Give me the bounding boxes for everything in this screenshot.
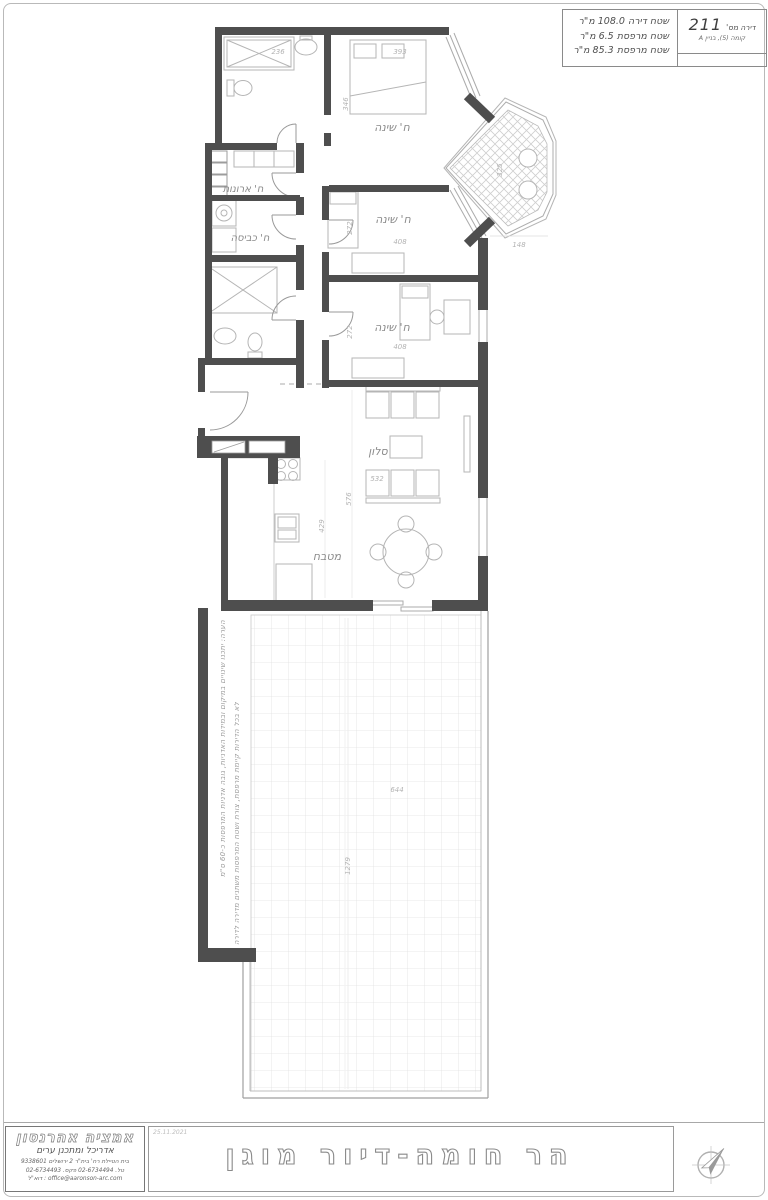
dim-terrace-h: 1279 [344, 857, 352, 875]
project-title: הר חומה-דיור מוגן [160, 1140, 640, 1171]
apartment-cell: דירה מס' 211 קומה (5), בניין A [677, 10, 766, 66]
label-bedroom-1: ח' שינה [374, 121, 410, 134]
dim-bed3-h: 272 [346, 325, 354, 339]
label-laundry-room: ח' כביסה [231, 233, 270, 244]
architect-profession: אדריכל ומתכנן ערים [6, 1146, 144, 1156]
floor-plan-drawing: ח' שינה ח' שינה ח' שינה ח' ארונות ח' כבי… [0, 0, 768, 1200]
label-closet-room: ח' ארונות [223, 184, 264, 195]
north-arrow-icon [686, 1136, 736, 1192]
dim-bay-w: 148 [512, 241, 526, 249]
apartment-number: 211 [689, 15, 723, 34]
dim-bed1-h: 346 [342, 97, 350, 111]
area-line-1: שטח דירה 108.0 מ"ר [567, 15, 669, 30]
architect-email: office@aaronson-arc.com : דוא"ל [6, 1175, 144, 1184]
dim-kitchen-h: 429 [318, 519, 326, 533]
floor-building-line: קומה (5), בניין A [678, 35, 766, 42]
terrace-note-line-2: לא בכל הדירות קיימת מרפסת, צורת ושטח המר… [233, 702, 241, 1002]
dim-living-w: 532 [370, 475, 384, 483]
architect-name: אמציה אהרנסון [6, 1130, 144, 1146]
label-bedroom-2: ח' שינה [375, 213, 411, 226]
terrace-note-line-1: הערה: יתכנו שינויים במיקום ובמידות האדני… [219, 620, 227, 980]
dim-bed1-w: 393 [393, 48, 406, 56]
furniture [207, 36, 470, 608]
floor-plan-sheet: { "sheet": { "title_block": { "apartment… [0, 0, 768, 1200]
area-line-2: שטח מרפסת 6.5 מ"ר [567, 30, 669, 45]
footer-separator [4, 1122, 764, 1123]
label-living-room: סלון [368, 445, 388, 458]
apartment-label: דירה מס' [726, 23, 755, 32]
title-block: שטח דירה 108.0 מ"ר שטח מרפסת 6.5 מ"ר שטח… [562, 9, 767, 67]
architect-address: בית הטיילת רח' בית"ר 2 ירושלים 9338601 [6, 1158, 144, 1167]
area-line-3: שטח מרפסת 85.3 מ"ר [567, 44, 669, 59]
label-kitchen: מטבח [313, 550, 342, 563]
date-stamp: 25.11.2021 [153, 1129, 187, 1136]
architect-stamp: אמציה אהרנסון אדריכל ומתכנן ערים בית הטי… [5, 1126, 145, 1192]
dim-bed2-w: 408 [393, 238, 407, 246]
dim-bed3-w: 408 [393, 343, 407, 351]
dim-bed2-h: 272 [346, 221, 354, 235]
dim-living-h: 576 [345, 492, 353, 506]
roof-terrace [243, 611, 488, 1098]
area-summary: שטח דירה 108.0 מ"ר שטח מרפסת 6.5 מ"ר שטח… [563, 10, 677, 66]
label-bedroom-3: ח' שינה [374, 321, 410, 334]
architect-phones: טל. 02-6734494 פקס. 02-6734493 [6, 1167, 144, 1176]
dim-bath1: 236 [271, 48, 285, 56]
dim-terrace-w: 644 [390, 786, 403, 794]
title-block-divider [678, 53, 766, 54]
dim-bay-h: 325 [496, 163, 504, 177]
